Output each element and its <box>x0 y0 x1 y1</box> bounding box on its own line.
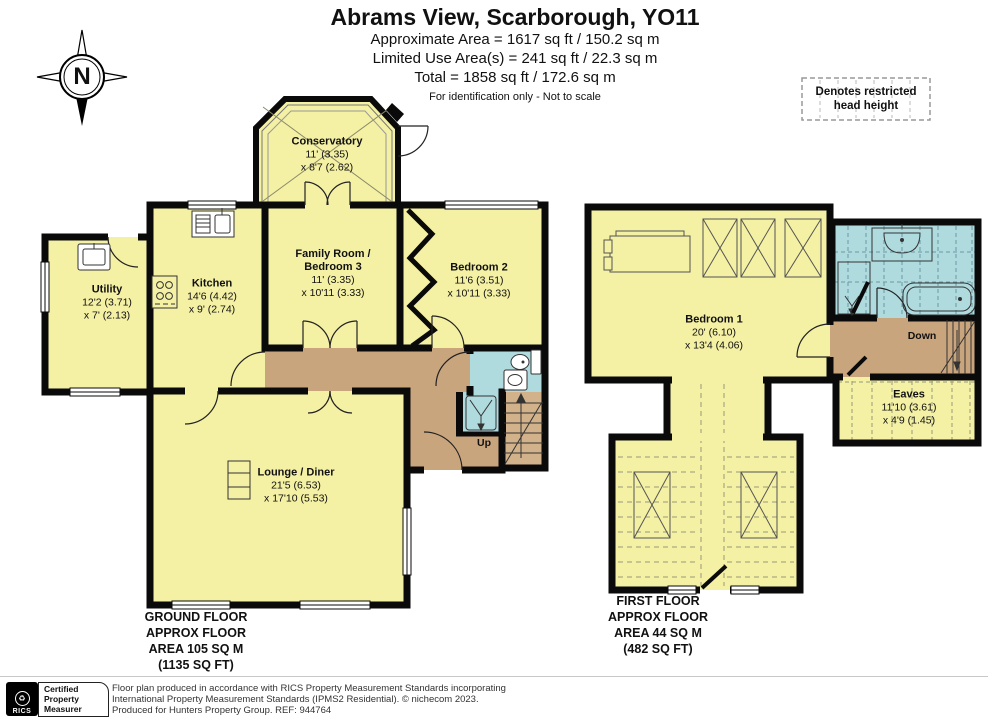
certified-measurer-badge: Certified Property Measurer <box>38 682 109 717</box>
approx-area: Approximate Area = 1617 sq ft / 150.2 sq… <box>290 31 740 49</box>
ground-floor-plan <box>41 99 545 609</box>
shower-wall-nib <box>456 392 463 435</box>
lounge-label: Lounge / Diner 21'5 (6.53) x 17'10 (5.53… <box>258 467 335 506</box>
basin-icon <box>504 370 527 390</box>
kitchen-label: Kitchen 14'6 (4.42) x 9' (2.74) <box>187 278 237 317</box>
kitchen-sink-icon <box>192 208 234 237</box>
ground-floor-caption: GROUND FLOOR APPROX FLOOR AREA 105 SQ M … <box>145 609 248 673</box>
footer-disclaimer: Floor plan produced in accordance with R… <box>112 683 506 716</box>
first-floor-caption: FIRST FLOOR APPROX FLOOR AREA 44 SQ M (4… <box>608 593 708 657</box>
rics-logo-text: RICS <box>13 707 32 716</box>
bedroom1-label: Bedroom 1 20' (6.10) x 13'4 (4.06) <box>685 314 743 353</box>
utility-sink-icon <box>78 243 110 270</box>
identification-note: For identification only - Not to scale <box>290 91 740 103</box>
bedroom2-label: Bedroom 2 11'6 (3.51) x 10'11 (3.33) <box>447 262 510 301</box>
bed-icon <box>604 231 690 272</box>
page-title: Abrams View, Scarborough, YO11 <box>290 4 740 30</box>
footer-divider <box>0 676 988 677</box>
plan-header: Abrams View, Scarborough, YO11 Approxima… <box>290 4 740 103</box>
floorplan-page: Abrams View, Scarborough, YO11 Approxima… <box>0 0 988 720</box>
hob-icon <box>152 276 177 308</box>
rics-logo-icon: ♻ <box>15 691 30 706</box>
restricted-height-legend: Denotes restricted head height <box>816 85 917 113</box>
stairs-down-label: Down <box>908 330 937 342</box>
family-room-label: Family Room / Bedroom 3 11' (3.35) x 10'… <box>295 248 370 300</box>
stairs-up-label: Up <box>477 437 491 449</box>
corridor <box>667 380 768 437</box>
eaves-label: Eaves 11'10 (3.61) x 4'9 (1.45) <box>882 389 937 428</box>
limited-use-area: Limited Use Area(s) = 241 sq ft / 22.3 s… <box>290 50 740 68</box>
compass-north-label: N <box>73 63 90 91</box>
total-area: Total = 1858 sq ft / 172.6 sq m <box>290 69 740 87</box>
conservatory-label: Conservatory 11' (3.35) x 8'7 (2.62) <box>292 136 363 175</box>
rics-badge: ♻ RICS <box>6 682 38 716</box>
utility-label: Utility 12'2 (3.71) x 7' (2.13) <box>82 284 132 323</box>
bottom-room <box>612 437 800 590</box>
